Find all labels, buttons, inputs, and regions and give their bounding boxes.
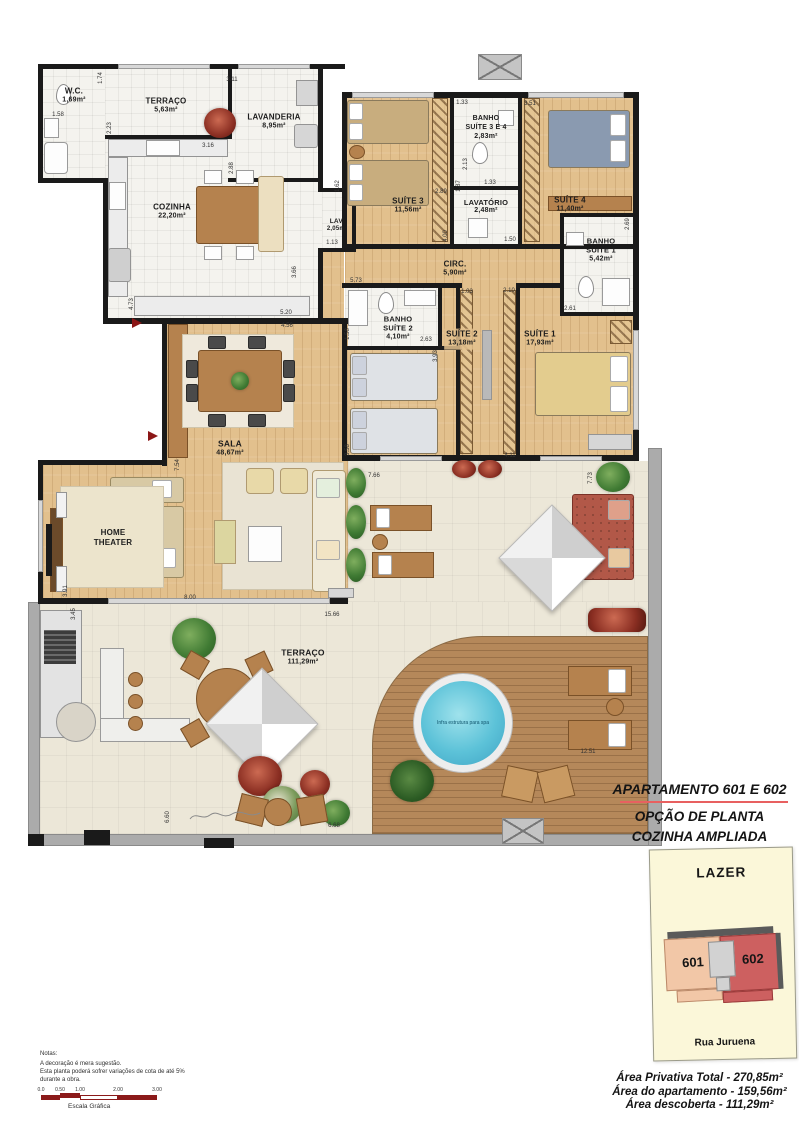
sill-shape bbox=[380, 456, 442, 461]
room-label-cozinha: COZINHA22,20m² bbox=[153, 203, 191, 222]
dim-shape: 2.23 bbox=[107, 122, 113, 134]
shape: SUÍTE 4 bbox=[554, 196, 586, 205]
room-label-lavanderia: LAVANDERIA8,95m² bbox=[247, 113, 300, 132]
dim-shape: 3.58 bbox=[345, 444, 351, 456]
plant-shape bbox=[346, 548, 366, 582]
kitchen-chair bbox=[236, 246, 254, 260]
suite3-closet bbox=[432, 98, 448, 242]
chair-shape bbox=[283, 384, 295, 402]
dim-shape: 6.60 bbox=[165, 811, 171, 823]
ar-shape: 2,05m² bbox=[327, 226, 347, 234]
room-label-suite3: SUÍTE 311,56m² bbox=[392, 197, 424, 216]
bath1-shower bbox=[602, 278, 630, 306]
wall-shape bbox=[38, 178, 108, 183]
wall-shape bbox=[518, 92, 522, 248]
armchair bbox=[246, 468, 274, 494]
sill-shape bbox=[528, 92, 624, 98]
room-label-lav: LAV.2,05m² bbox=[327, 218, 347, 234]
plan-option-line1: OPÇÃO DE PLANTA bbox=[600, 809, 799, 824]
room-label-wc: W.C.1,69m² bbox=[62, 87, 85, 106]
dim-shape: 3.51 bbox=[524, 101, 536, 107]
terrace-frame-bottom bbox=[28, 834, 662, 846]
ar-shape: 5,42m² bbox=[586, 255, 616, 264]
plan-option-line2: COZINHA AMPLIADA bbox=[600, 829, 799, 844]
pil-shape bbox=[610, 386, 628, 412]
wall-stub bbox=[204, 838, 234, 848]
room-label-banho2: BANHOSUÍTE 24,10m² bbox=[383, 314, 413, 342]
shape: TERRAÇO bbox=[281, 647, 324, 657]
ar-shape: 17,93m² bbox=[524, 340, 556, 349]
shape: SUÍTE 1 bbox=[524, 330, 556, 339]
tick-shape: 3.00 bbox=[152, 1087, 162, 1093]
kitchen-sink bbox=[109, 182, 126, 210]
shape: HOME bbox=[101, 528, 126, 537]
dim-shape: 1.13 bbox=[326, 240, 338, 246]
room-label-banho1: BANHOSUÍTE 15,42m² bbox=[586, 236, 616, 264]
pil-shape bbox=[610, 114, 626, 136]
pil-shape bbox=[352, 356, 367, 375]
pil-shape bbox=[349, 123, 363, 140]
ar-shape: 11,40m² bbox=[554, 206, 586, 215]
room-label-lavatorio: LAVATÓRIO2,48m² bbox=[464, 198, 508, 216]
shape: LAVATÓRIO bbox=[464, 198, 508, 207]
pil-shape bbox=[349, 164, 363, 181]
shape: THEATER bbox=[94, 538, 133, 548]
dim-shape: 7.66 bbox=[368, 473, 380, 479]
bath2-shower bbox=[348, 290, 368, 326]
tick-shape: 2.00 bbox=[113, 1087, 123, 1093]
room-label-circ: CIRC.5,90m² bbox=[443, 260, 466, 279]
ar-shape: 4,10m² bbox=[383, 333, 413, 342]
round-basin bbox=[56, 702, 96, 742]
deck-side-table bbox=[606, 698, 624, 716]
kitchen-chair bbox=[204, 246, 222, 260]
wall-stub bbox=[84, 830, 110, 845]
notes-line1: A decoração é mera sugestão. bbox=[40, 1061, 121, 1069]
suite1-wardrobe bbox=[610, 320, 632, 344]
room-label-suite4: SUÍTE 411,40m² bbox=[554, 196, 586, 215]
dim-shape: 1.33 bbox=[456, 100, 468, 106]
ar-shape: 22,20m² bbox=[153, 213, 191, 222]
dim-shape: 7.54 bbox=[175, 459, 181, 471]
ar-shape: 1,69m² bbox=[62, 97, 85, 106]
bar-stool bbox=[128, 694, 143, 709]
tv-screen bbox=[46, 524, 52, 576]
scale-bar-segment bbox=[41, 1095, 60, 1100]
wall-shape bbox=[38, 460, 167, 465]
room-label-home-theater: HOMETHEATER bbox=[94, 528, 133, 548]
dim-shape: 3.91 bbox=[63, 585, 69, 597]
shape bbox=[190, 812, 260, 819]
shape: LAV. bbox=[330, 218, 345, 225]
chair-shape bbox=[248, 336, 266, 349]
room-label-suite1: SUÍTE 117,93m² bbox=[524, 330, 556, 349]
shaft-marker-top bbox=[478, 54, 522, 80]
kitchen-bench bbox=[258, 176, 284, 252]
bath34-toilet bbox=[472, 142, 488, 164]
ar-shape: 2,83m² bbox=[465, 132, 506, 141]
fridge bbox=[108, 248, 131, 282]
area-apartment-line: Área do apartamento - 159,56m² bbox=[600, 1086, 799, 1098]
shape: SUÍTE 2 bbox=[446, 330, 478, 339]
scale-bar-segment bbox=[80, 1095, 118, 1100]
pil-shape bbox=[608, 669, 626, 693]
deck-hedge bbox=[588, 608, 646, 632]
ar-shape: 48,67m² bbox=[216, 449, 243, 458]
dim-shape: 2.13 bbox=[463, 158, 469, 170]
dim-shape: 3.66 bbox=[292, 266, 298, 278]
pil-shape bbox=[608, 500, 630, 520]
room-label-terraco-p: TERRAÇO5,63m² bbox=[146, 97, 187, 116]
suite4-closet bbox=[524, 98, 540, 242]
kitchen-chair bbox=[204, 170, 222, 184]
terrace-frame-left bbox=[28, 602, 40, 846]
notes-line3: durante a obra. bbox=[40, 1077, 81, 1085]
dim-shape: 4.00 bbox=[443, 230, 449, 242]
wall-shape bbox=[516, 283, 520, 460]
shape: SUÍTE 3 E 4 bbox=[465, 124, 506, 133]
unit-601-label: 601 bbox=[671, 953, 716, 970]
dim-shape: 6.68 bbox=[328, 823, 340, 829]
wall-shape bbox=[560, 213, 564, 316]
room-label-sala: SALA48,67m² bbox=[216, 438, 243, 457]
chair-shape bbox=[186, 384, 198, 402]
pil-shape bbox=[378, 555, 392, 575]
entry-arrow-icon bbox=[148, 431, 158, 441]
wall-shape bbox=[162, 318, 167, 466]
pouf bbox=[214, 520, 236, 564]
speaker bbox=[56, 492, 67, 518]
dim-shape: 3.45 bbox=[71, 608, 77, 620]
ar-shape: 8,95m² bbox=[247, 123, 300, 132]
abs-shape bbox=[716, 977, 731, 992]
bar-stool bbox=[128, 716, 143, 731]
notes-line2: Esta planta poderá sofrer variações de c… bbox=[40, 1069, 185, 1077]
dim-shape: 1.58 bbox=[345, 328, 351, 340]
dim-shape: 8.00 bbox=[184, 595, 196, 601]
chair-shape bbox=[283, 360, 295, 378]
barbecue-grill bbox=[44, 630, 76, 664]
dim-shape: 5.73 bbox=[350, 278, 362, 284]
pil-shape bbox=[610, 140, 626, 162]
pil-shape bbox=[608, 548, 630, 568]
laundry-tub bbox=[296, 80, 318, 106]
wall-shape bbox=[318, 64, 323, 190]
plant-shape bbox=[346, 468, 366, 498]
flower-planter bbox=[204, 108, 236, 138]
wall-shape bbox=[342, 322, 347, 461]
side-table bbox=[372, 534, 388, 550]
pil-shape bbox=[316, 478, 340, 498]
balcony-planter bbox=[452, 460, 476, 478]
wall-shape bbox=[560, 312, 638, 316]
closet-wardrobe bbox=[503, 290, 516, 454]
abs-shape bbox=[723, 989, 774, 1003]
shape: COZINHA bbox=[153, 203, 191, 212]
dim-shape: 7.73 bbox=[588, 472, 594, 484]
deck-shower-plate bbox=[328, 588, 354, 598]
chair-shape bbox=[208, 336, 226, 349]
pil-shape bbox=[352, 411, 367, 429]
dim-shape: 1.33 bbox=[484, 180, 496, 186]
dim-shape: 1.50 bbox=[504, 237, 516, 243]
title-divider bbox=[620, 801, 788, 803]
pil-shape bbox=[352, 378, 367, 397]
bar-stool bbox=[128, 672, 143, 687]
dim-shape: 2.61 bbox=[564, 306, 576, 312]
pil-shape bbox=[349, 184, 363, 201]
bath1-sink bbox=[566, 232, 584, 246]
dim-shape: 1.62 bbox=[335, 180, 341, 192]
ar-shape: 5,90m² bbox=[443, 270, 466, 279]
shape: BANHO bbox=[473, 115, 500, 122]
dim-shape: 4.73 bbox=[129, 298, 135, 310]
shape: CIRC. bbox=[444, 260, 467, 269]
dim-shape: 4.56 bbox=[281, 323, 293, 329]
shaft-marker-bottom bbox=[502, 818, 544, 844]
table-plant bbox=[231, 372, 249, 390]
ar-shape: 111,29m² bbox=[281, 658, 324, 667]
dim-shape: 1.87 bbox=[456, 180, 462, 192]
ar-shape: 11,56m² bbox=[392, 207, 424, 216]
wall-shape bbox=[318, 252, 323, 322]
shape: BANHO bbox=[587, 236, 616, 245]
shape: LAVANDERIA bbox=[247, 113, 300, 122]
wc-sink bbox=[44, 118, 59, 138]
plant-shape bbox=[346, 505, 366, 539]
building-footprint: 601 602 bbox=[661, 926, 785, 1009]
wood-ottoman bbox=[296, 794, 328, 826]
sill-shape bbox=[238, 64, 310, 69]
wall-shape bbox=[38, 64, 43, 183]
room-label-suite2: SUÍTE 213,18m² bbox=[444, 329, 480, 350]
pil-shape bbox=[352, 432, 367, 450]
sill-shape bbox=[352, 92, 434, 98]
plantr-shape bbox=[300, 770, 330, 798]
sill-shape bbox=[38, 500, 43, 572]
sill-shape bbox=[108, 598, 330, 604]
wc-shower bbox=[44, 142, 68, 174]
entry-hall-floor bbox=[322, 252, 344, 322]
lavatorio-sink bbox=[468, 218, 488, 238]
pil-shape bbox=[316, 540, 340, 560]
dim-shape: 3.93 bbox=[433, 350, 439, 362]
bath2-counter bbox=[404, 290, 436, 306]
dim-shape: 3.11 bbox=[226, 77, 237, 83]
chair-shape bbox=[248, 414, 266, 427]
dim-shape: 2.10 bbox=[503, 288, 515, 294]
dim-shape: 2.88 bbox=[229, 162, 235, 174]
notes-heading: Notas: bbox=[40, 1051, 57, 1059]
armchair bbox=[280, 468, 308, 494]
closet-mirror bbox=[482, 330, 492, 400]
balcony-planter bbox=[478, 460, 502, 478]
shape: SUÍTE 1 bbox=[586, 246, 616, 255]
dim-shape: 12.51 bbox=[580, 749, 595, 755]
pool-label: Infra estrutura para spa bbox=[437, 720, 489, 726]
floor-plan-page: Infra estrutura para spa W.C.1,69m² TERR… bbox=[0, 0, 799, 1130]
scale-bar-label: Escala Gráfica bbox=[68, 1103, 110, 1111]
area-total-line: Área Privativa Total - 270,85m² bbox=[600, 1072, 799, 1084]
dim-shape: 2.89 bbox=[435, 189, 447, 195]
location-key-box: LAZER 601 602 Rua Juruena bbox=[649, 847, 797, 1062]
scale-bar-segment bbox=[118, 1095, 157, 1100]
pil-shape bbox=[610, 356, 628, 382]
wall-shape bbox=[516, 283, 564, 288]
pil-shape bbox=[376, 508, 390, 528]
closet-wardrobe bbox=[460, 290, 473, 454]
deck-palm bbox=[390, 760, 434, 802]
kitchen-chair bbox=[236, 170, 254, 184]
shape: TERRAÇO bbox=[146, 97, 187, 106]
shape: W.C. bbox=[65, 87, 83, 96]
dim-shape: 2.63 bbox=[420, 337, 432, 343]
dim-shape: 3.16 bbox=[202, 143, 214, 149]
artist-signature bbox=[188, 808, 262, 824]
deck-cushion bbox=[501, 765, 539, 803]
pil-shape bbox=[349, 103, 363, 120]
sill-shape bbox=[633, 330, 639, 430]
dim-shape: 4.11 bbox=[504, 453, 515, 459]
sill-shape bbox=[540, 456, 602, 461]
coffee-table bbox=[248, 526, 282, 562]
room-label-terraco-g: TERRAÇO111,29m² bbox=[281, 647, 324, 666]
dim-shape: 1.03 bbox=[461, 289, 473, 295]
shape: SALA bbox=[218, 438, 242, 448]
street-label: Rua Juruena bbox=[654, 1035, 796, 1049]
bath1-toilet bbox=[578, 276, 594, 298]
plant-shape bbox=[596, 462, 630, 492]
suite3-nightstand bbox=[349, 145, 365, 159]
wall-stub bbox=[28, 834, 44, 846]
scale-bar-segment bbox=[60, 1093, 80, 1098]
ar-shape: 5,63m² bbox=[146, 107, 187, 116]
wall-shape bbox=[438, 283, 442, 350]
chair-shape bbox=[186, 360, 198, 378]
unit-602-label: 602 bbox=[730, 950, 775, 967]
shape: SUÍTE 3 bbox=[392, 197, 424, 206]
tick-shape: 0.0 bbox=[38, 1087, 45, 1093]
bath2-toilet bbox=[378, 292, 394, 314]
dim-shape: 1.58 bbox=[52, 112, 64, 118]
lazer-label: LAZER bbox=[650, 864, 792, 882]
dim-shape: 5.20 bbox=[280, 310, 292, 316]
apartment-title: APARTAMENTO 601 E 602 bbox=[600, 781, 799, 797]
pil-shape bbox=[608, 723, 626, 747]
wall-shape bbox=[450, 92, 454, 248]
stove bbox=[146, 140, 180, 156]
dim-shape: 2.69 bbox=[625, 218, 631, 230]
area-open-line: Área descoberta - 111,29m² bbox=[600, 1099, 799, 1111]
chair-shape bbox=[208, 414, 226, 427]
entry-arrow-icon bbox=[132, 318, 142, 328]
ar-shape: 13,18m² bbox=[446, 340, 478, 349]
dim-shape: 1.74 bbox=[98, 72, 104, 84]
wood-round-table bbox=[264, 798, 292, 826]
ar-shape: 2,48m² bbox=[464, 207, 508, 216]
suite1-tv-rack bbox=[588, 434, 632, 450]
shape: SUÍTE 2 bbox=[383, 324, 413, 333]
bar-counter bbox=[100, 718, 190, 742]
sill-shape bbox=[118, 64, 210, 69]
shape: BANHO bbox=[384, 314, 413, 323]
dim-shape: 15.66 bbox=[324, 612, 339, 618]
room-label-banho34: BANHOSUÍTE 3 E 42,83m² bbox=[465, 115, 506, 141]
